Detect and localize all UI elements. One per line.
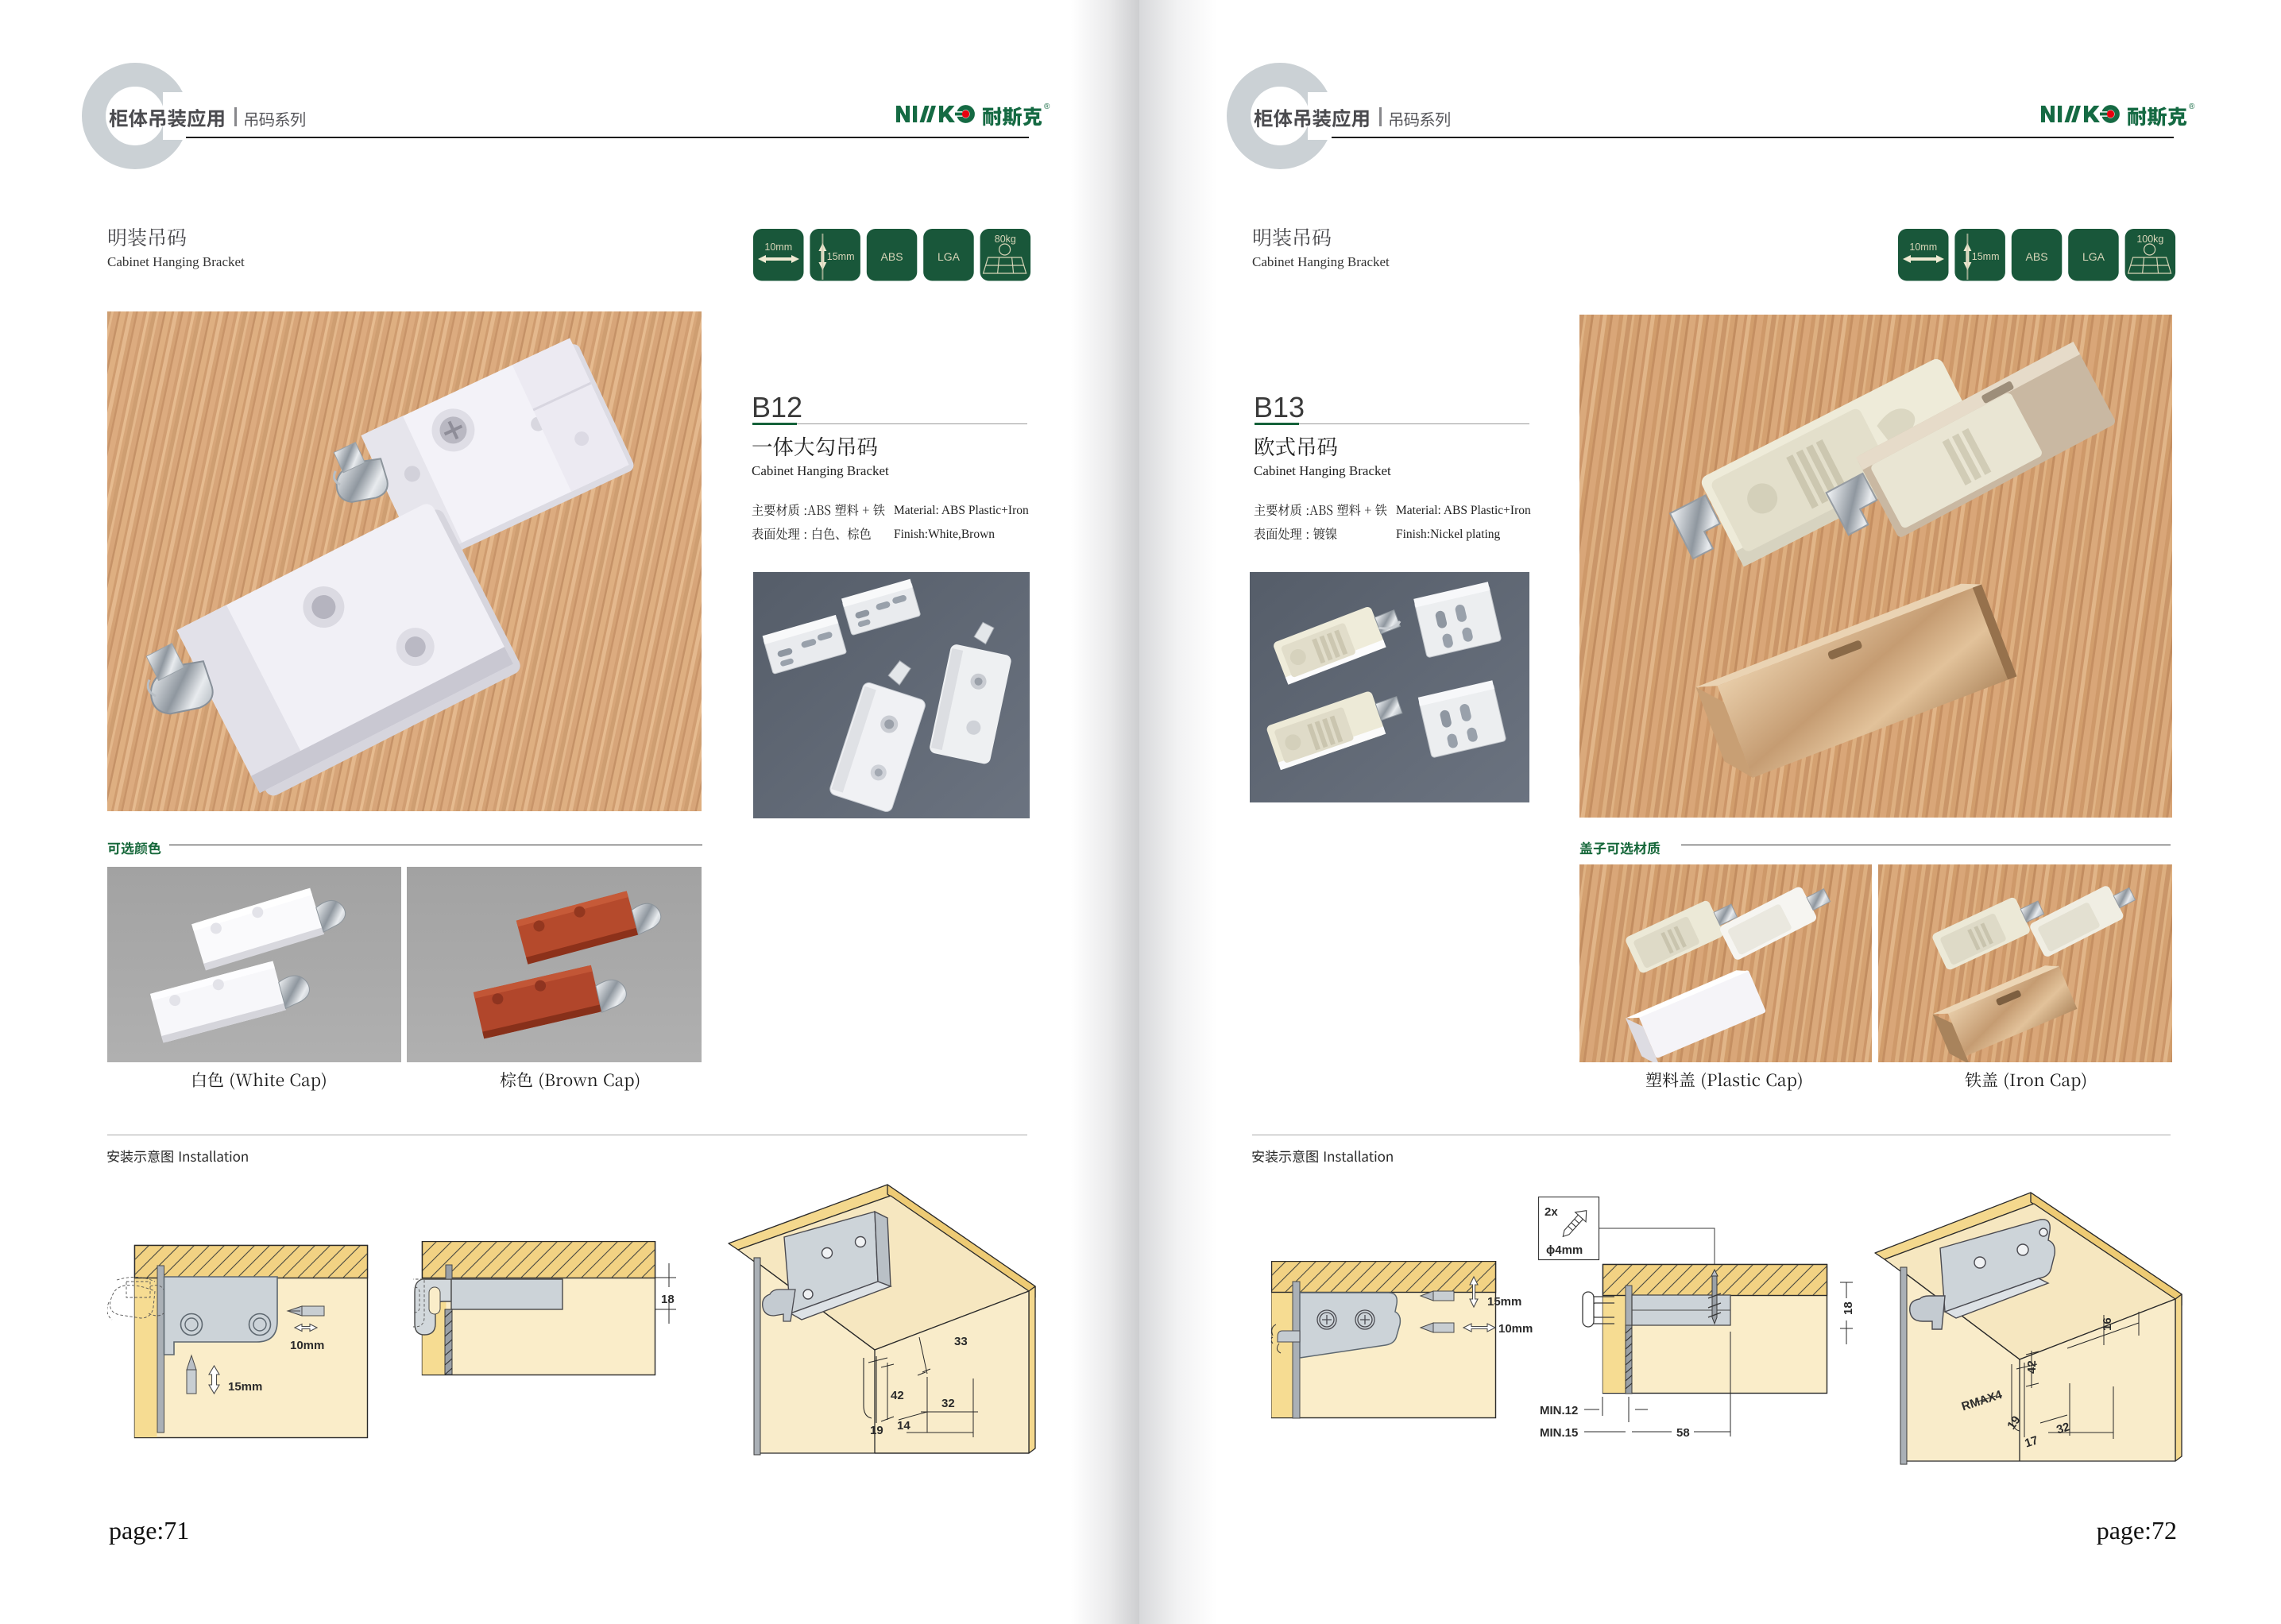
svg-text:16: 16 (2101, 1317, 2114, 1331)
svg-text:18: 18 (661, 1293, 675, 1306)
svg-text:18: 18 (1842, 1301, 1855, 1315)
svg-text:15mm: 15mm (826, 251, 854, 262)
svg-text:42: 42 (2025, 1360, 2039, 1374)
svg-text:LGA: LGA (2082, 250, 2105, 263)
svg-text:10mm: 10mm (290, 1339, 324, 1352)
svg-text:ABS: ABS (880, 250, 903, 263)
svg-text:MIN.12: MIN.12 (1540, 1404, 1578, 1417)
svg-text:19: 19 (870, 1424, 883, 1437)
svg-text:10mm: 10mm (1909, 242, 1937, 253)
svg-text:10mm: 10mm (1498, 1322, 1533, 1336)
svg-text:14: 14 (897, 1419, 910, 1433)
svg-text:15mm: 15mm (1972, 251, 2000, 262)
svg-text:2x: 2x (1545, 1205, 1558, 1219)
svg-text:MIN.15: MIN.15 (1540, 1426, 1578, 1440)
svg-text:32: 32 (941, 1397, 955, 1410)
svg-text:100kg: 100kg (2136, 234, 2163, 245)
svg-text:15mm: 15mm (228, 1380, 262, 1394)
svg-text:ϕ4mm: ϕ4mm (1546, 1243, 1583, 1257)
svg-text:42: 42 (891, 1389, 904, 1402)
svg-text:58: 58 (1676, 1426, 1690, 1440)
svg-text:15mm: 15mm (1487, 1295, 1521, 1309)
svg-text:10mm: 10mm (764, 242, 792, 253)
svg-text:33: 33 (954, 1335, 968, 1348)
svg-text:LGA: LGA (937, 250, 960, 263)
svg-text:ABS: ABS (2026, 250, 2048, 263)
svg-text:80kg: 80kg (994, 234, 1015, 245)
